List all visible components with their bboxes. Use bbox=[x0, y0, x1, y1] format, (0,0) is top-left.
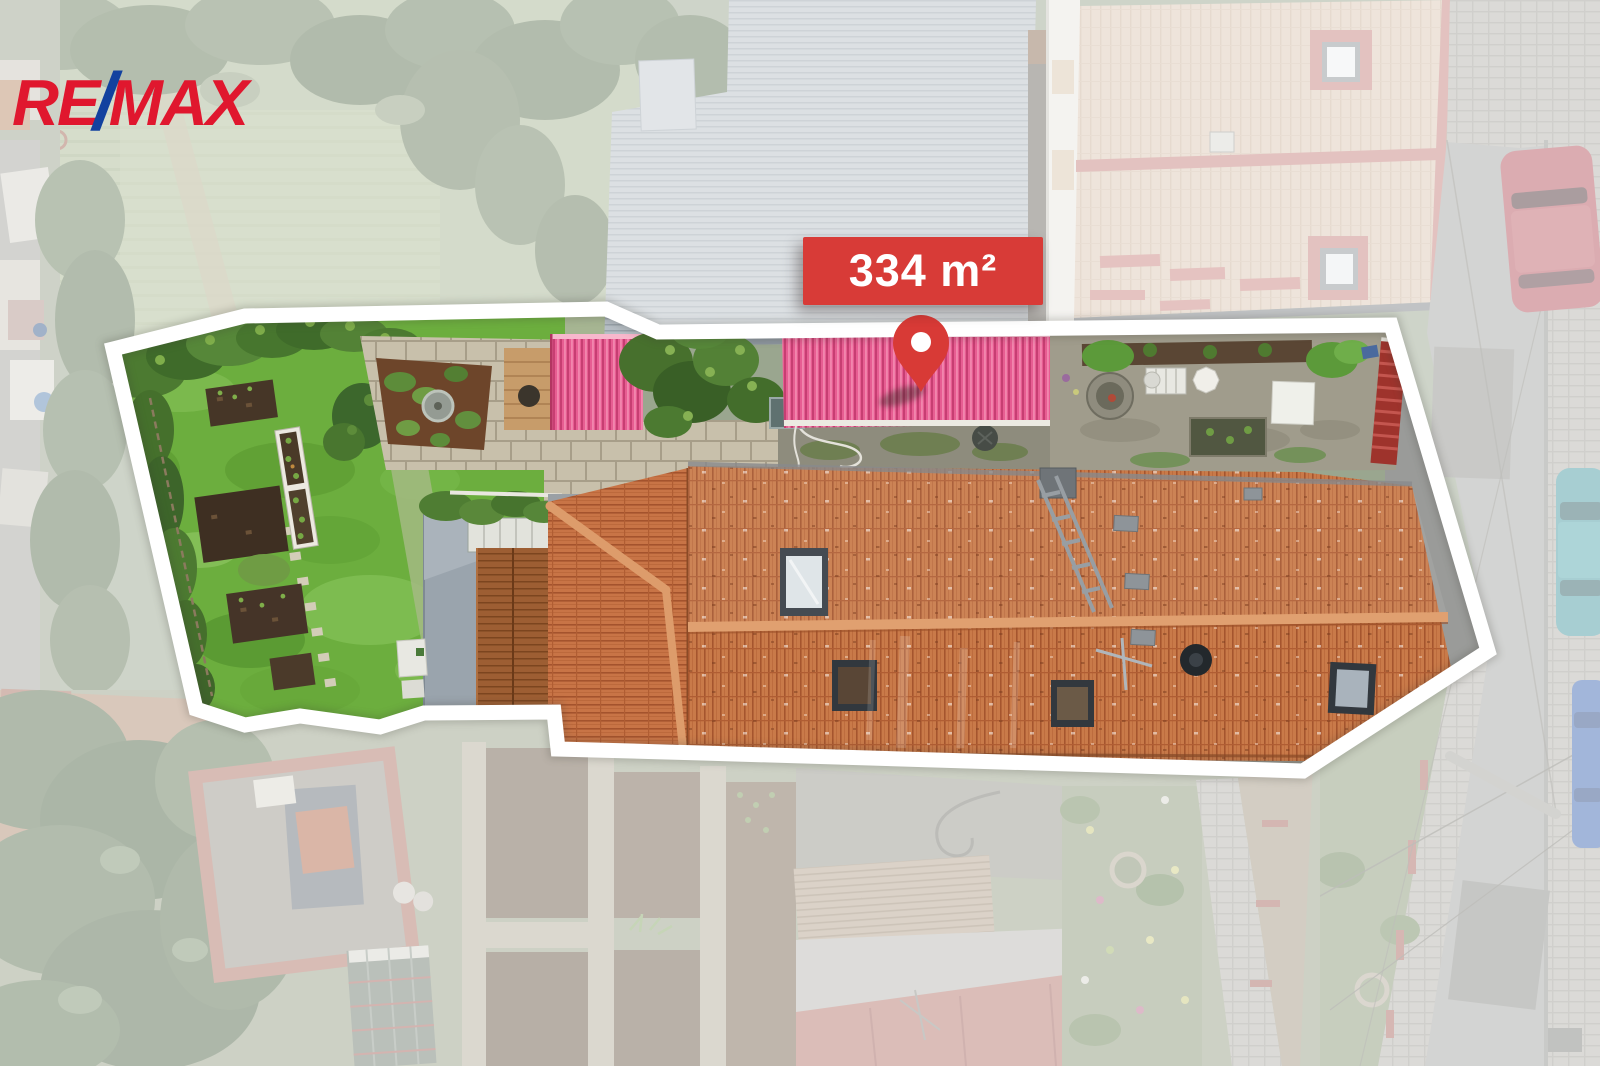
white-slab bbox=[1271, 381, 1314, 424]
aerial-scene bbox=[0, 0, 1600, 1066]
hip-roof-section bbox=[548, 468, 688, 758]
hanging-chair bbox=[518, 385, 540, 407]
area-label: 334 m² bbox=[803, 237, 1043, 305]
area-label-text: 334 m² bbox=[849, 245, 998, 297]
remax-logo-slash-icon: / bbox=[93, 57, 113, 147]
roof-window bbox=[1328, 662, 1377, 715]
listing-aerial-image: RE/MAX 334 m² bbox=[0, 0, 1600, 1066]
remax-logo-max: MAX bbox=[109, 66, 247, 139]
remax-logo-re: RE bbox=[12, 66, 98, 139]
main-roof bbox=[688, 464, 1464, 762]
right-courtyard bbox=[1050, 324, 1407, 472]
garden-table bbox=[1193, 367, 1219, 393]
remax-logo: RE/MAX bbox=[12, 58, 247, 139]
